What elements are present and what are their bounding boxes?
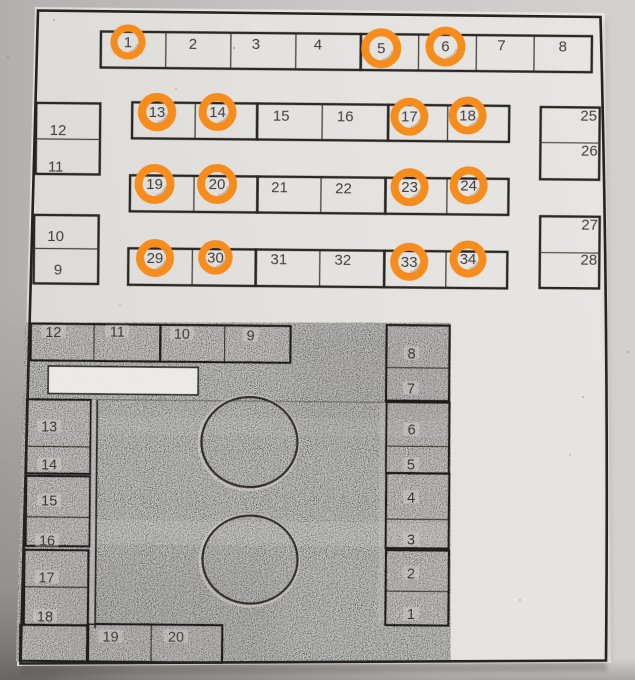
svg-text:27: 27 [581,217,598,234]
svg-text:21: 21 [271,179,288,196]
svg-text:11: 11 [48,158,64,175]
svg-text:5: 5 [407,457,415,473]
svg-text:8: 8 [407,346,415,362]
svg-text:29: 29 [147,250,164,267]
svg-text:22: 22 [335,180,352,197]
svg-text:33: 33 [401,254,418,271]
svg-text:18: 18 [37,609,53,625]
svg-text:20: 20 [209,176,226,193]
svg-text:13: 13 [41,419,57,435]
svg-text:7: 7 [497,37,506,54]
svg-text:9: 9 [246,329,254,345]
svg-text:5: 5 [377,40,386,57]
svg-text:4: 4 [407,490,415,506]
svg-text:11: 11 [110,325,125,341]
svg-text:31: 31 [270,251,287,268]
svg-text:14: 14 [41,457,57,473]
svg-text:15: 15 [41,493,57,509]
svg-text:32: 32 [334,252,351,269]
svg-text:10: 10 [174,327,190,343]
svg-text:4: 4 [314,37,323,54]
svg-text:9: 9 [54,262,63,279]
svg-text:12: 12 [45,325,61,341]
svg-text:1: 1 [124,34,133,51]
svg-text:2: 2 [407,566,415,582]
svg-text:18: 18 [459,107,476,124]
svg-text:8: 8 [559,38,568,55]
svg-text:1: 1 [407,607,415,623]
svg-text:14: 14 [209,104,226,121]
svg-text:3: 3 [252,36,261,53]
svg-text:19: 19 [146,176,163,193]
svg-text:7: 7 [407,381,415,397]
svg-text:6: 6 [441,38,450,55]
svg-text:28: 28 [580,252,597,269]
svg-text:17: 17 [401,108,418,125]
svg-text:3: 3 [407,532,415,548]
svg-text:16: 16 [337,108,354,125]
svg-text:12: 12 [50,122,67,139]
svg-text:34: 34 [460,251,477,268]
svg-text:16: 16 [39,533,55,549]
svg-text:17: 17 [38,570,54,586]
svg-text:25: 25 [580,108,597,125]
svg-text:20: 20 [168,629,184,645]
svg-text:6: 6 [407,422,415,438]
svg-text:2: 2 [189,36,198,53]
svg-text:13: 13 [149,104,166,121]
svg-text:10: 10 [47,228,64,245]
svg-text:15: 15 [273,108,290,125]
svg-text:26: 26 [581,143,598,160]
svg-text:24: 24 [460,177,477,194]
svg-text:19: 19 [102,629,118,645]
svg-text:23: 23 [401,179,418,196]
